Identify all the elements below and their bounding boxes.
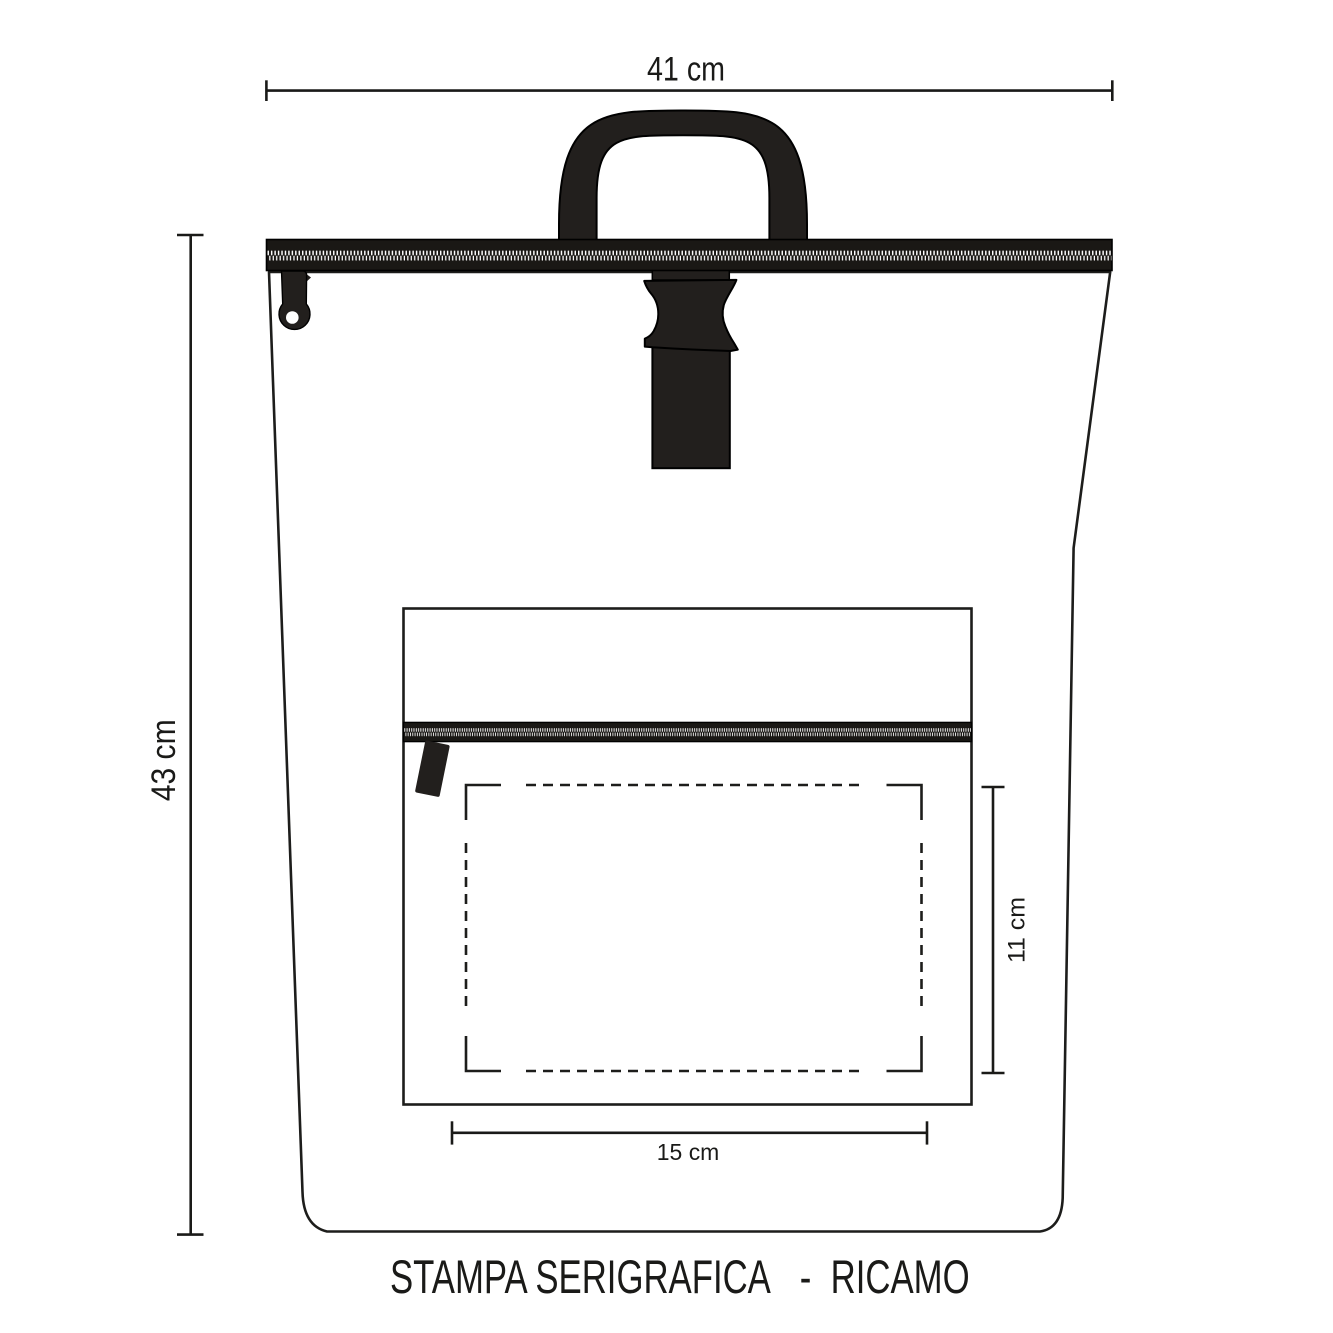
svg-text:43 cm: 43 cm: [145, 719, 183, 801]
svg-text:11 cm: 11 cm: [1004, 897, 1031, 963]
svg-text:15 cm: 15 cm: [657, 1139, 720, 1165]
svg-text:41 cm: 41 cm: [647, 51, 725, 89]
svg-text:STAMPA SERIGRAFICA - RICAMO: STAMPA SERIGRAFICA - RICAMO: [390, 1251, 970, 1304]
